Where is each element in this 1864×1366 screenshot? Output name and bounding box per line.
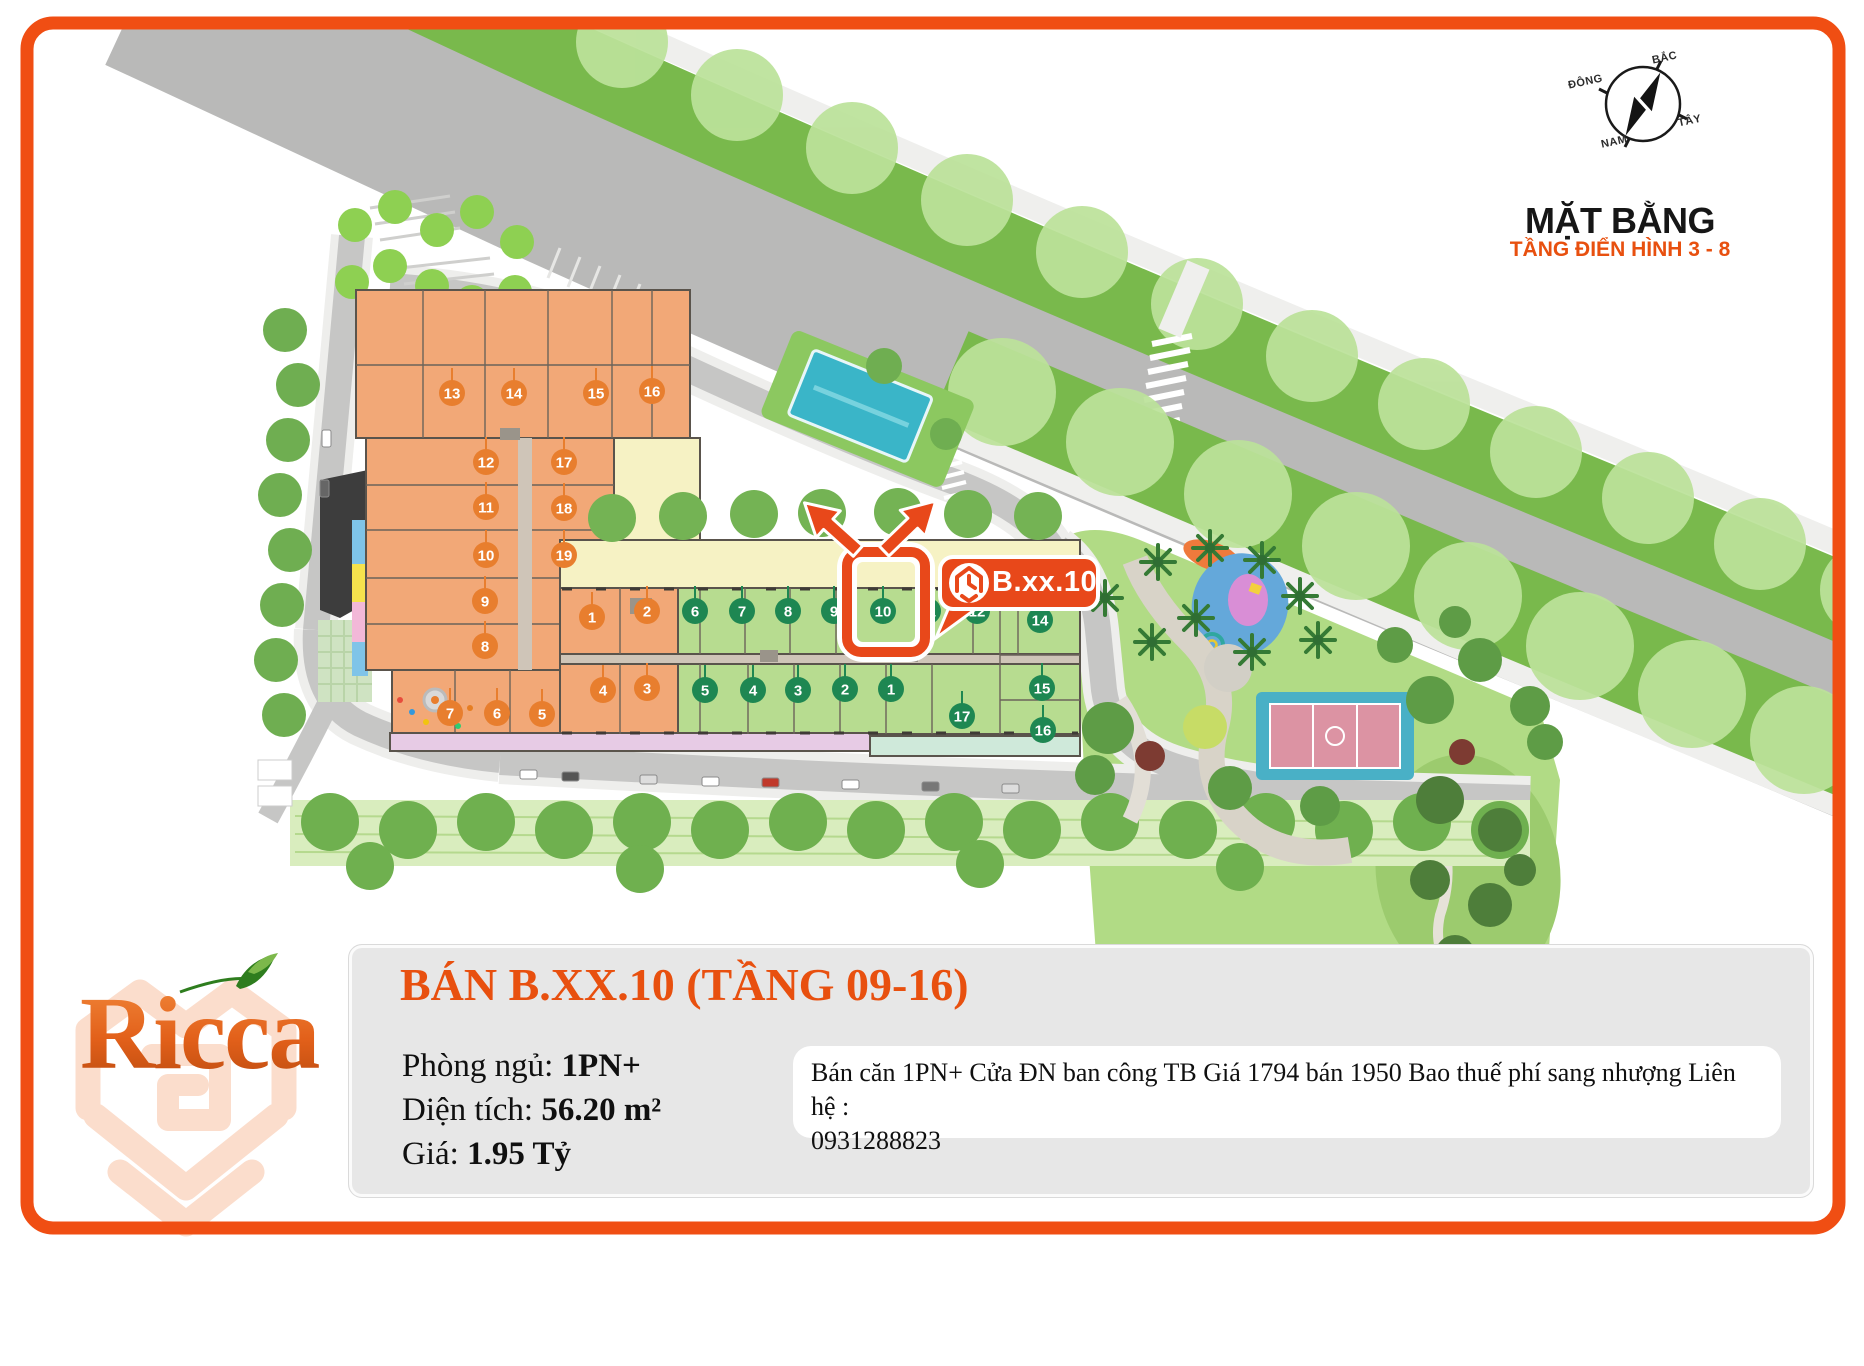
svg-text:1: 1 [887,682,895,699]
bush-yellow [1183,705,1227,749]
area-label: Diện tích: [402,1092,541,1128]
svg-text:19: 19 [556,548,573,565]
svg-text:2: 2 [841,682,849,699]
svg-text:8: 8 [784,604,792,621]
svg-text:14: 14 [1032,613,1049,630]
bedrooms-label: Phòng ngủ: [402,1048,562,1084]
svg-text:2: 2 [643,604,651,621]
description-text: Bán căn 1PN+ Cửa ĐN ban công TB Giá 1794… [811,1058,1736,1121]
price-row: Giá: 1.95 Tỷ [402,1136,571,1173]
plan-title: MẶT BẰNG [1450,200,1790,242]
svg-text:16: 16 [644,384,661,401]
block-a-corridor [518,438,532,670]
svg-text:14: 14 [506,386,523,403]
svg-text:13: 13 [444,386,461,403]
price-label: Giá: [402,1136,467,1172]
plan-subtitle: TẦNG ĐIỂN HÌNH 3 - 8 [1450,238,1790,262]
svg-text:3: 3 [794,683,802,700]
svg-text:7: 7 [738,604,746,621]
svg-text:9: 9 [481,594,489,611]
compass-icon [1599,61,1687,147]
price-value: 1.95 Tỷ [467,1136,571,1172]
svg-text:4: 4 [599,683,608,700]
svg-text:5: 5 [701,683,709,700]
bush-red [1135,741,1165,771]
listing-title: BÁN B.XX.10 (TẦNG 09-16) [400,958,969,1011]
basketball-court [1256,692,1414,780]
svg-text:1: 1 [588,610,596,627]
svg-text:15: 15 [588,386,605,403]
svg-text:6: 6 [493,706,501,723]
svg-text:12: 12 [478,455,495,472]
svg-text:16: 16 [1035,723,1052,740]
listing-flyer: 1314151612171118101998765124367891011121… [0,0,1864,1366]
svg-text:10: 10 [875,604,892,621]
svg-text:7: 7 [446,706,454,723]
ricca-logo-text: Ricca [80,976,319,1091]
svg-text:18: 18 [556,501,573,518]
svg-text:8: 8 [481,639,489,656]
svg-text:5: 5 [538,707,546,724]
svg-text:10: 10 [478,548,495,565]
area-row: Diện tích: 56.20 m² [402,1092,661,1129]
svg-text:4: 4 [749,683,758,700]
svg-text:17: 17 [556,455,573,472]
unit-callout-label: B.xx.10 [992,566,1096,599]
svg-text:15: 15 [1034,681,1051,698]
bedrooms-row: Phòng ngủ: 1PN+ [402,1048,641,1085]
svg-text:11: 11 [478,500,494,517]
phone-number: 0931288823 [811,1126,941,1155]
description-box: Bán căn 1PN+ Cửa ĐN ban công TB Giá 1794… [793,1046,1781,1138]
svg-text:17: 17 [954,709,971,726]
area-value: 56.20 m² [541,1092,661,1128]
svg-text:9: 9 [830,604,838,621]
svg-text:3: 3 [643,681,651,698]
site-plan-drawing: 1314151612171118101998765124367891011121… [140,0,1864,1010]
bedrooms-value: 1PN+ [562,1048,641,1084]
svg-text:6: 6 [691,604,699,621]
